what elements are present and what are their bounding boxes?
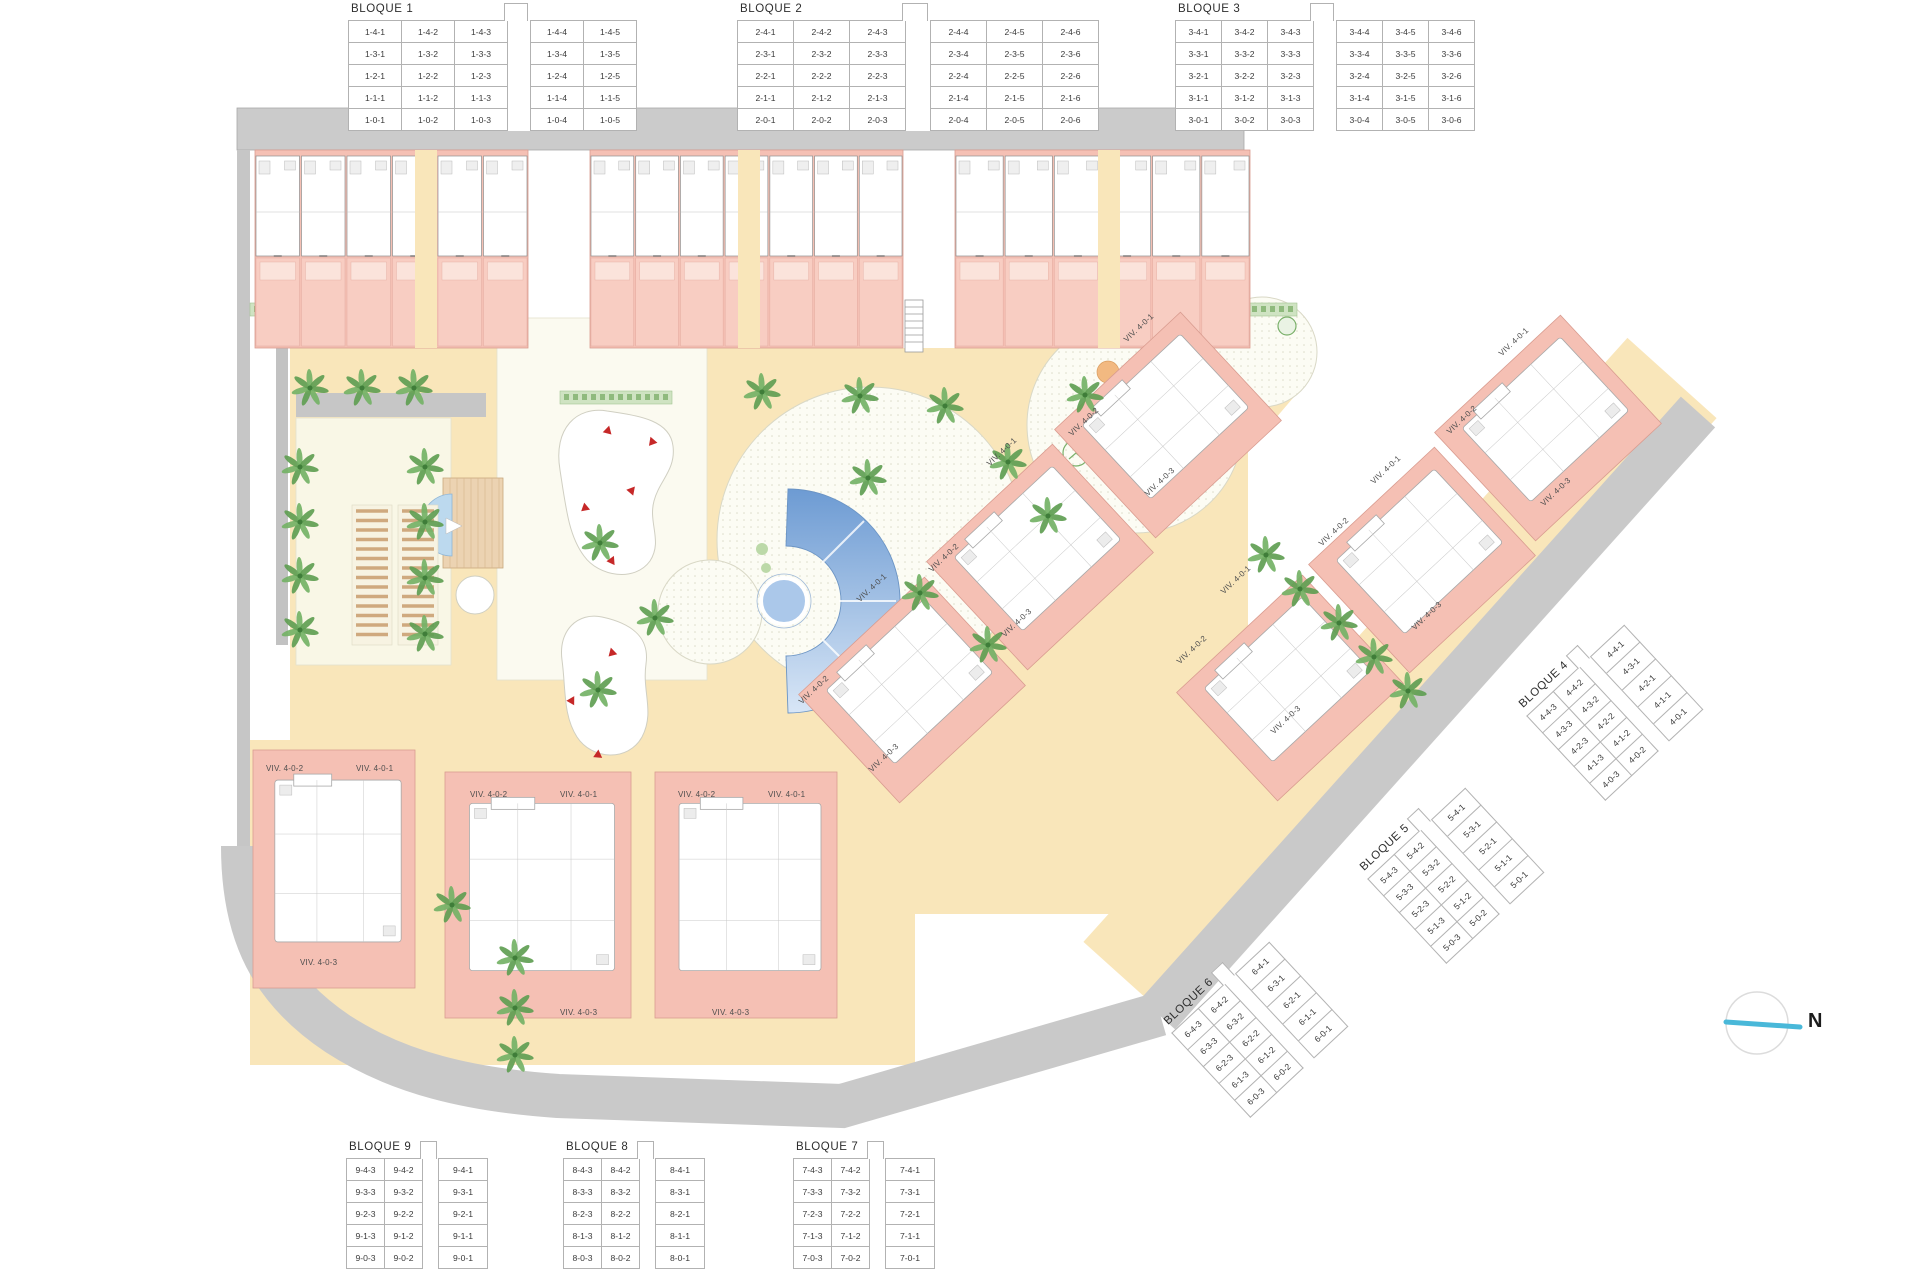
left-sidewalk	[237, 150, 250, 850]
pool-round	[761, 578, 807, 624]
floor-plan	[469, 797, 614, 970]
bush-icon	[761, 563, 771, 573]
row-housing-strip	[955, 150, 1250, 348]
fountain	[456, 576, 494, 614]
site-plan-map	[0, 0, 1920, 1280]
palm-tree-icon	[1247, 536, 1285, 574]
floor-plan	[275, 774, 401, 942]
row-housing-strip	[590, 150, 903, 348]
floor-plan	[679, 797, 821, 970]
left-wall	[276, 303, 288, 645]
row-housing-strip	[255, 150, 528, 348]
apartment-cluster	[655, 772, 837, 1018]
plaza-circle-4	[658, 560, 762, 664]
round-planter-icon	[1278, 317, 1296, 335]
north-label: N	[1808, 1010, 1822, 1033]
service-lane	[296, 393, 486, 417]
apartment-cluster	[253, 750, 415, 988]
north-compass: N	[1712, 980, 1842, 1065]
site-plan-page: { "tables": { "bloque1": {"title":"BLOQU…	[0, 0, 1920, 1280]
top-road	[237, 108, 1244, 150]
north-arrow-icon	[1712, 980, 1842, 1060]
stair-ladder	[905, 300, 923, 352]
apartment-cluster	[445, 772, 631, 1018]
bush-icon	[756, 543, 768, 555]
